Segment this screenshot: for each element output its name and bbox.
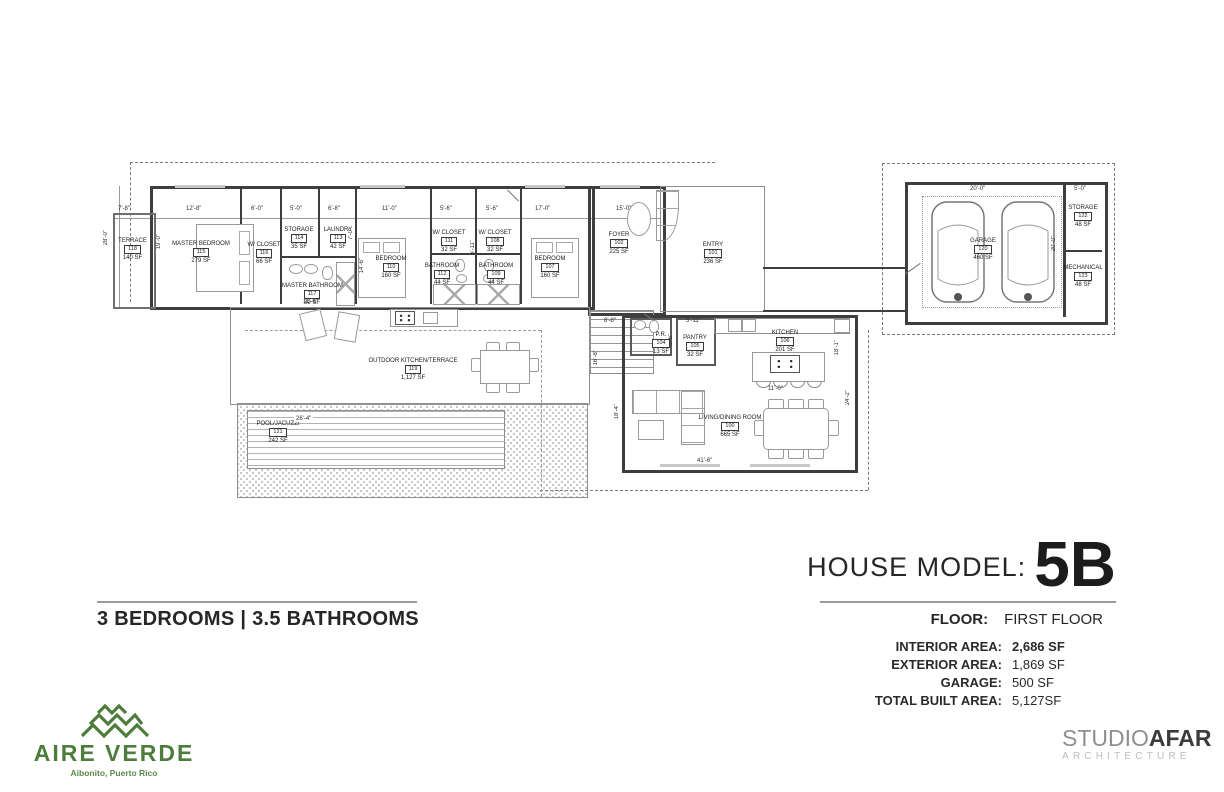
room-area: 44 SF — [424, 279, 460, 287]
dimension-label: 17'-0" — [535, 206, 550, 212]
window — [600, 185, 640, 188]
room-name: OUTDOOR KITCHEN/TERRACE — [368, 357, 458, 365]
cabinet-icon — [728, 319, 742, 332]
studio-afar-logo: STUDIOAFAR ARCHITECTURE — [1062, 727, 1212, 762]
room-area: 35 SF — [282, 243, 316, 251]
room-area: 236 SF — [692, 258, 734, 266]
dimension-label: 15'-0" — [616, 206, 631, 212]
room-number: 113 — [330, 234, 347, 243]
room-number: 119 — [405, 365, 422, 374]
room-number: 123 — [1074, 272, 1091, 281]
brand-location: Aibonito, Puerto Rico — [30, 768, 198, 778]
area-value: 1,869 SF — [1012, 657, 1090, 672]
room-area: 160 SF — [368, 272, 414, 280]
room-number-row: 113 — [321, 234, 355, 243]
dimension-label: 12'-8" — [186, 206, 201, 212]
room-area: 201 SF — [766, 346, 804, 354]
window — [525, 185, 565, 188]
room-area: 32 SF — [428, 246, 470, 254]
room-number: 111 — [441, 237, 457, 246]
room-number: 107 — [541, 263, 558, 272]
chair-icon — [529, 358, 539, 372]
floor-label: FLOOR: — [931, 611, 989, 628]
room-label-terrace: TERRACE 118 140 SF — [105, 237, 160, 262]
area-label: TOTAL BUILT AREA: — [875, 693, 1002, 708]
area-summary-table: INTERIOR AREA: 2,686 SF EXTERIOR AREA: 1… — [875, 639, 1090, 708]
room-number: 109 — [487, 270, 504, 279]
room-number: 114 — [291, 234, 308, 243]
outdoor-table-icon — [480, 350, 530, 384]
room-label-powder-room: P.R. 104 13 SF — [648, 331, 674, 356]
room-name: GARAGE — [962, 237, 1004, 245]
dimension-label: 20'-0" — [1051, 236, 1057, 251]
room-name: W/ CLOSET — [244, 241, 284, 249]
room-area: 140 SF — [105, 254, 160, 262]
room-number: 122 — [1074, 212, 1091, 221]
dimension-label: 18'-4" — [614, 404, 620, 419]
dimension-label: 41'-6" — [697, 458, 712, 464]
room-number: 105 — [686, 342, 703, 351]
room-area: 279 SF — [170, 257, 232, 265]
area-label: GARAGE: — [875, 675, 1002, 690]
room-number-row: 108 — [474, 237, 516, 246]
room-number: 108 — [486, 237, 503, 246]
pillow-icon — [556, 242, 573, 253]
room-number-row: 123 — [1062, 272, 1104, 281]
dimension-label: 20'-0" — [970, 186, 985, 192]
floor-plan-drawing: TERRACE 118 140 SF MASTER BEDROOM 115 27… — [0, 0, 1224, 560]
room-name: MASTER BEDROOM — [170, 240, 232, 248]
dimension-label: 5'-0" — [290, 206, 302, 212]
room-name: LAUNDRY — [321, 226, 355, 234]
sink-icon — [304, 264, 318, 274]
room-name: MASTER BATHROOM — [282, 282, 342, 290]
room-area: 242 SF — [246, 437, 310, 445]
room-label-w-closet-1: W/ CLOSET 111 32 SF — [428, 229, 470, 254]
dining-table-icon — [763, 408, 829, 450]
room-number-row: 107 — [527, 263, 573, 272]
room-label-garage: GARAGE 120 460 SF — [962, 237, 1004, 262]
room-area: 32 SF — [678, 351, 712, 359]
room-label-bathroom-2: BATHROOM 109 44 SF — [478, 262, 514, 287]
brand-name: AIRE VERDE — [30, 740, 198, 767]
room-label-w-closet-master: W/ CLOSET 116 66 SF — [244, 241, 284, 266]
room-number-row: 112 — [424, 270, 460, 279]
window — [360, 185, 405, 188]
dimension-label: 18'-1" — [834, 340, 840, 355]
dimension-label: 7'-8" — [118, 206, 130, 212]
room-name: P.R. — [648, 331, 674, 339]
room-number: 104 — [652, 339, 669, 348]
studio-subtitle: ARCHITECTURE — [1062, 752, 1212, 762]
stove-icon — [395, 311, 415, 325]
room-number-row: 106 — [766, 337, 804, 346]
dimension-label: 6'-0" — [251, 206, 263, 212]
dimension-label: 6'-8" — [328, 206, 340, 212]
area-label: INTERIOR AREA: — [875, 639, 1002, 654]
room-name: BEDROOM — [527, 255, 573, 263]
closet-hatch — [433, 284, 476, 305]
dimension-label: 8'-8" — [604, 318, 616, 324]
room-label-master-bedroom: MASTER BEDROOM 115 279 SF — [170, 240, 232, 265]
room-area: 225 SF — [598, 248, 640, 256]
room-name: W/ CLOSET — [474, 229, 516, 237]
room-number: 120 — [974, 245, 991, 254]
wall-partition — [355, 188, 357, 304]
walkway-line — [763, 267, 905, 269]
room-number: 102 — [610, 239, 627, 248]
floor-value: FIRST FLOOR — [1004, 611, 1103, 628]
living-setback-dashed — [868, 330, 869, 490]
room-number: 115 — [193, 248, 210, 257]
toilet-icon — [322, 266, 333, 280]
car-icon — [998, 199, 1058, 305]
ottoman-icon — [638, 420, 664, 440]
dimension-label: 14'-6" — [359, 258, 365, 273]
room-area: 160 SF — [527, 272, 573, 280]
room-number-row: 109 — [478, 270, 514, 279]
chair-icon — [828, 420, 839, 436]
room-label-pool: POOL/JACUZZI 121 242 SF — [246, 420, 310, 445]
room-area: 665 SF — [698, 431, 762, 439]
room-name: BATHROOM — [424, 262, 460, 270]
counter-appliance-icon — [834, 319, 850, 333]
room-area: 48 SF — [1064, 221, 1102, 229]
room-area: 13 SF — [648, 348, 674, 356]
room-number-row: 100 — [698, 422, 762, 431]
area-value: 2,686 SF — [1012, 639, 1090, 654]
dimension-label: 11'-0" — [382, 206, 397, 212]
window — [660, 464, 720, 467]
area-label: EXTERIOR AREA: — [875, 657, 1002, 672]
room-number: 110 — [383, 263, 400, 272]
window — [750, 464, 810, 467]
room-number-row: 120 — [962, 245, 1004, 254]
wall-partition — [318, 188, 320, 258]
bedrooms-bathrooms-text: 3 BEDROOMS | 3.5 BATHROOMS — [97, 608, 419, 631]
house-model-title: HOUSE MODEL: 5B — [807, 538, 1116, 590]
room-number-row: 104 — [648, 339, 674, 348]
room-label-laundry: LAUNDRY 113 42 SF — [321, 226, 355, 251]
room-label-bathroom-1: BATHROOM 112 44 SF — [424, 262, 460, 287]
room-number-row: 121 — [246, 428, 310, 437]
room-name: BEDROOM — [368, 255, 414, 263]
room-label-living-dining: LIVING/DINING ROOM 100 665 SF — [698, 414, 762, 439]
area-value: 5,127SF — [1012, 693, 1090, 708]
room-number-row: 115 — [170, 248, 232, 257]
afar-word: AFAR — [1149, 725, 1212, 751]
room-number: 101 — [704, 249, 721, 258]
room-label-mechanical: MECHANICAL 123 48 SF — [1062, 264, 1104, 289]
room-label-foyer: FOYER 102 225 SF — [598, 231, 640, 256]
room-number-row: 119 — [368, 365, 458, 374]
room-area: 48 SF — [1062, 281, 1104, 289]
room-label-entry: ENTRY 101 236 SF — [692, 241, 734, 266]
room-label-storage: STORAGE 114 35 SF — [282, 226, 316, 251]
window — [175, 185, 225, 188]
room-label-master-bathroom: MASTER BATHROOM 117 89 SF — [282, 282, 342, 307]
room-number-row: 110 — [368, 263, 414, 272]
room-name: W/ CLOSET — [428, 229, 470, 237]
dimension-label: 5'-11" — [686, 318, 701, 324]
room-area: 1,127 SF — [368, 374, 458, 382]
room-name: KITCHEN — [766, 329, 804, 337]
room-number-row: 102 — [598, 239, 640, 248]
plan-sheet: TERRACE 118 140 SF MASTER BEDROOM 115 27… — [0, 0, 1224, 792]
wall-garage-divider — [1066, 250, 1102, 252]
living-setback-dashed — [540, 490, 868, 491]
room-label-bedroom-2: BEDROOM 107 160 SF — [527, 255, 573, 280]
room-name: PANTRY — [678, 334, 712, 342]
pillow-icon — [363, 242, 380, 253]
dimension-label: 16'-8" — [593, 350, 599, 365]
sink-icon — [289, 264, 303, 274]
divider-line — [97, 601, 417, 603]
room-label-pantry: PANTRY 105 32 SF — [678, 334, 712, 359]
room-area: 42 SF — [321, 243, 355, 251]
room-number-row: 122 — [1064, 212, 1102, 221]
room-number: 116 — [256, 249, 273, 258]
wall-partition — [520, 188, 522, 304]
cabinet-icon — [742, 319, 756, 332]
dimension-label: 24'-2" — [845, 390, 851, 405]
room-label-w-closet-2: W/ CLOSET 108 32 SF — [474, 229, 516, 254]
room-name: ENTRY — [692, 241, 734, 249]
room-area: 89 SF — [282, 299, 342, 307]
room-number-row: 116 — [244, 249, 284, 258]
room-number: 118 — [124, 245, 141, 254]
room-number: 100 — [721, 422, 738, 431]
room-name: TERRACE — [105, 237, 160, 245]
room-number-row: 105 — [678, 342, 712, 351]
setback-dashed-line — [130, 162, 715, 163]
area-value: 500 SF — [1012, 675, 1090, 690]
dimension-label: 26'-4" — [294, 416, 313, 422]
house-model-value: 5B — [1034, 538, 1116, 590]
room-name: STORAGE — [1064, 204, 1102, 212]
house-model-label: HOUSE MODEL: — [807, 552, 1026, 590]
room-number-row: 111 — [428, 237, 470, 246]
room-label-kitchen: KITCHEN 106 201 SF — [766, 329, 804, 354]
pillow-icon — [536, 242, 553, 253]
room-name: BATHROOM — [478, 262, 514, 270]
pillow-icon — [383, 242, 400, 253]
divider-line — [820, 601, 1116, 603]
room-number-row: 117 — [282, 290, 342, 299]
room-number-row: 118 — [105, 245, 160, 254]
room-area: 44 SF — [478, 279, 514, 287]
chair-icon — [486, 383, 500, 393]
room-number-row: 101 — [692, 249, 734, 258]
sink-icon — [423, 312, 438, 324]
room-name: MECHANICAL — [1062, 264, 1104, 272]
studio-wordmark: STUDIOAFAR — [1062, 727, 1212, 750]
walkway-line — [763, 310, 905, 312]
dimension-label: 5'-6" — [486, 206, 498, 212]
aire-verde-logo: AIRE VERDE Aibonito, Puerto Rico — [30, 700, 198, 778]
room-label-outdoor-kitchen: OUTDOOR KITCHEN/TERRACE 119 1,127 SF — [368, 357, 458, 382]
chair-icon — [506, 383, 520, 393]
floor-row: FLOOR: FIRST FLOOR — [931, 611, 1103, 628]
sink-icon — [634, 320, 646, 330]
studio-word: STUDIO — [1062, 725, 1149, 751]
room-name: LIVING/DINING ROOM — [698, 414, 762, 422]
room-area: 460 SF — [962, 254, 1004, 262]
room-number: 112 — [434, 270, 451, 279]
closet-hatch — [477, 284, 520, 305]
room-name: FOYER — [598, 231, 640, 239]
room-label-garage-storage: STORAGE 122 48 SF — [1064, 204, 1102, 229]
dimension-label: 5'-0" — [1074, 186, 1086, 192]
stove-icon — [770, 355, 800, 373]
room-number: 106 — [776, 337, 793, 346]
room-area: 66 SF — [244, 258, 284, 266]
dimension-label: 11'-0" — [768, 386, 783, 392]
room-number: 117 — [304, 290, 321, 299]
room-number-row: 114 — [282, 234, 316, 243]
room-name: STORAGE — [282, 226, 316, 234]
room-label-bedroom-1: BEDROOM 110 160 SF — [368, 255, 414, 280]
room-number: 121 — [269, 428, 286, 437]
dimension-label: 5'-6" — [440, 206, 452, 212]
room-area: 32 SF — [474, 246, 516, 254]
wall-partition — [280, 256, 357, 258]
zigzag-mountains-icon — [72, 700, 156, 738]
